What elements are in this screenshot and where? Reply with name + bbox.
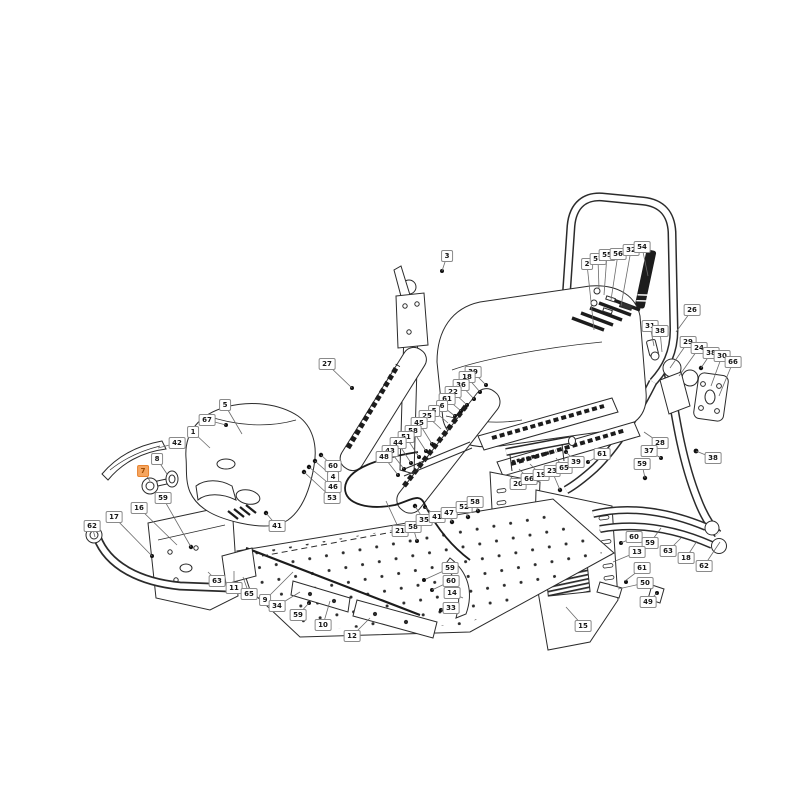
callout-61[interactable]: 61 [634,562,651,574]
callout-60[interactable]: 60 [626,531,643,543]
callout-63[interactable]: 63 [660,545,677,557]
callout-58[interactable]: 58 [467,496,484,508]
callout-59[interactable]: 59 [634,458,651,470]
callout-60[interactable]: 60 [443,575,460,587]
callout-1[interactable]: 1 [187,426,199,438]
callout-33[interactable]: 33 [443,602,460,614]
callout-59[interactable]: 59 [155,492,172,504]
callout-14[interactable]: 14 [444,587,461,599]
callout-50[interactable]: 50 [637,577,654,589]
callout-53[interactable]: 53 [324,492,341,504]
callout-42[interactable]: 42 [169,437,186,449]
callout-54[interactable]: 54 [634,241,651,253]
callout-27[interactable]: 27 [319,358,336,370]
callout-5[interactable]: 5 [219,399,231,411]
callout-59[interactable]: 59 [442,562,459,574]
callout-37[interactable]: 37 [641,445,658,457]
callout-3[interactable]: 3 [441,250,453,262]
callout-62[interactable]: 62 [696,560,713,572]
callouts-layer: 5671428759161762416311659345910126044653… [0,0,800,800]
callout-16[interactable]: 16 [131,502,148,514]
callout-10[interactable]: 10 [315,619,332,631]
callout-48[interactable]: 48 [376,451,393,463]
callout-13[interactable]: 13 [629,546,646,558]
callout-38[interactable]: 38 [705,452,722,464]
parts-diagram: 5671428759161762416311659345910126044653… [0,0,800,800]
callout-26[interactable]: 26 [684,304,701,316]
callout-34[interactable]: 34 [269,600,286,612]
callout-8[interactable]: 8 [151,453,163,465]
callout-63[interactable]: 63 [209,575,226,587]
callout-12[interactable]: 12 [344,630,361,642]
callout-66[interactable]: 66 [725,356,742,368]
callout-49[interactable]: 49 [640,596,657,608]
callout-41[interactable]: 41 [269,520,286,532]
callout-38[interactable]: 38 [652,325,669,337]
callout-61[interactable]: 61 [594,448,611,460]
callout-17[interactable]: 17 [106,511,123,523]
callout-67[interactable]: 67 [199,414,216,426]
callout-39[interactable]: 39 [568,456,585,468]
callout-18[interactable]: 18 [678,552,695,564]
callout-62[interactable]: 62 [84,520,101,532]
callout-65[interactable]: 65 [241,588,258,600]
callout-15[interactable]: 15 [575,620,592,632]
callout-7-highlighted[interactable]: 7 [137,465,149,477]
callout-59[interactable]: 59 [290,609,307,621]
